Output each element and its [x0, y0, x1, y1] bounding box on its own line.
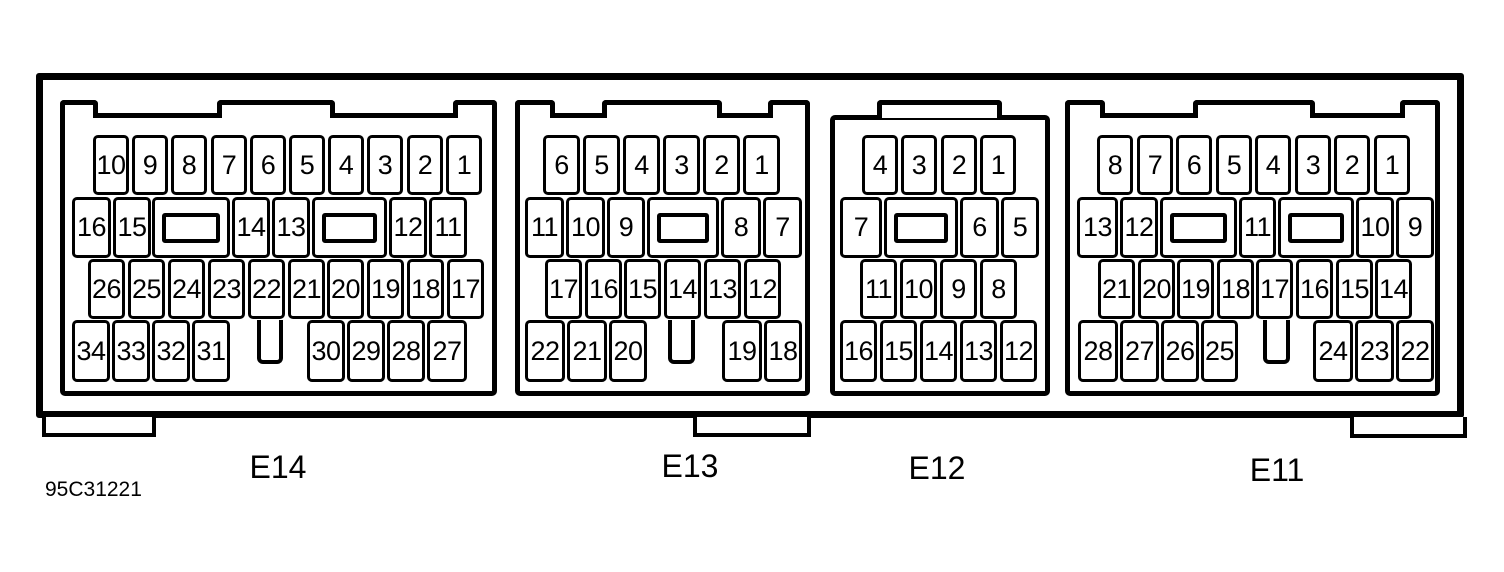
e14-pin: 12: [389, 197, 427, 258]
e13-pin: 18: [764, 320, 802, 382]
e13-pin: 10: [566, 197, 605, 258]
e14-pin: 26: [88, 259, 125, 319]
e12-pin: 1: [980, 135, 1016, 195]
e14-pin: 31: [192, 320, 230, 382]
e14-pin: 6: [250, 135, 286, 195]
e14-pin: 29: [347, 320, 385, 382]
e11-pin: 17: [1256, 259, 1293, 319]
e11-pin: 9: [1396, 197, 1434, 258]
e14-pin: 13: [272, 197, 310, 258]
e13-pin: 22: [525, 320, 565, 382]
mount-tab-right: [1350, 417, 1467, 438]
e13-pin: 8: [721, 197, 761, 258]
e11-blank-slot-plug: [1170, 213, 1227, 243]
e14-pin: 20: [327, 259, 364, 319]
e11-blank-slot: [1278, 197, 1354, 258]
e14-key-tab-0: [60, 100, 98, 118]
figure-reference-label: 95C31221: [45, 478, 142, 502]
e14-pin: 27: [427, 320, 467, 382]
e14-pin: 28: [387, 320, 425, 382]
e13-pin: 5: [583, 135, 620, 195]
e14-pin: 2: [407, 135, 443, 195]
e11-key-tab-1: [1193, 100, 1315, 118]
e11-pin: 2: [1334, 135, 1370, 195]
e11-pin: 10: [1356, 197, 1394, 258]
e11-pin: 8: [1097, 135, 1133, 195]
e11-pin: 11: [1239, 197, 1276, 258]
e14-pin: 7: [211, 135, 247, 195]
e12-pin: 16: [840, 320, 877, 382]
e14-blank-slot-plug: [322, 213, 377, 243]
e14-pin: 3: [367, 135, 403, 195]
e14-pin: 5: [289, 135, 325, 195]
e12-pin: 3: [901, 135, 937, 195]
connector-label-e14: E14: [250, 449, 307, 486]
e14-pin: 34: [72, 320, 110, 382]
e11-pin: 6: [1176, 135, 1212, 195]
mount-tab-middle: [693, 417, 811, 437]
e13-pin: 20: [609, 320, 647, 382]
e13-key-tab-0: [515, 100, 555, 118]
e11-pin: 1: [1374, 135, 1410, 195]
e13-blank-slot: [647, 197, 719, 258]
e13-pin: 12: [744, 259, 781, 319]
e14-blank-slot: [312, 197, 387, 258]
e14-pin: 18: [407, 259, 444, 319]
e13-pin: 1: [743, 135, 780, 195]
e14-pin: 25: [128, 259, 165, 319]
e11-pin: 16: [1296, 259, 1333, 319]
e11-pin: 27: [1120, 320, 1159, 382]
e14-pin: 32: [152, 320, 190, 382]
e11-pin: 19: [1177, 259, 1214, 319]
e13-pin: 16: [585, 259, 622, 319]
e14-pin: 30: [307, 320, 345, 382]
e13-key-tab-2: [768, 100, 810, 118]
e14-pin: 8: [171, 135, 207, 195]
e11-pin: 14: [1375, 259, 1412, 319]
e12-pin: 10: [900, 259, 937, 319]
e14-key-channel: [257, 320, 283, 364]
e11-pin: 26: [1161, 320, 1199, 382]
e14-pin: 17: [447, 259, 484, 319]
e14-pin: 9: [132, 135, 168, 195]
e13-blank-slot-plug: [657, 213, 709, 243]
e14-pin: 16: [72, 197, 111, 258]
connector-label-e11: E11: [1250, 452, 1305, 489]
e14-key-tab-1: [217, 100, 335, 118]
connector-label-e12: E12: [909, 450, 966, 487]
e11-pin: 28: [1078, 320, 1118, 382]
e11-key-tab-2: [1400, 100, 1440, 118]
e12-pin: 13: [960, 320, 997, 382]
e14-pin: 1: [446, 135, 482, 195]
e14-pin: 23: [208, 259, 245, 319]
e11-pin: 12: [1120, 197, 1158, 258]
e11-pin: 25: [1201, 320, 1238, 382]
e13-pin: 9: [607, 197, 645, 258]
e13-pin: 14: [664, 259, 701, 319]
e11-pin: 20: [1138, 259, 1175, 319]
e11-pin: 4: [1255, 135, 1291, 195]
e11-pin: 23: [1355, 320, 1394, 382]
e11-pin: 22: [1396, 320, 1434, 382]
e14-key-tab-2: [453, 100, 497, 118]
e13-pin: 19: [722, 320, 762, 382]
mount-tab-left: [42, 417, 156, 437]
e14-pin: 21: [288, 259, 325, 319]
e12-pin: 6: [960, 197, 999, 258]
e13-pin: 4: [623, 135, 660, 195]
e14-pin: 4: [328, 135, 364, 195]
e13-pin: 21: [567, 320, 607, 382]
e14-pin: 11: [429, 197, 467, 258]
e11-key-tab-0: [1065, 100, 1105, 118]
e14-blank-slot-plug: [162, 213, 220, 243]
e11-pin: 7: [1137, 135, 1173, 195]
e11-pin: 18: [1217, 259, 1254, 319]
e14-pin: 24: [168, 259, 205, 319]
e11-key-channel: [1263, 320, 1290, 364]
e12-pin: 7: [840, 197, 882, 258]
e12-pin: 4: [862, 135, 898, 195]
e12-blank-slot-plug: [894, 213, 948, 243]
e14-pin: 15: [113, 197, 151, 258]
e11-blank-slot: [1160, 197, 1237, 258]
connector-pinout-diagram: 1098765432116151413121126252423222120191…: [0, 0, 1504, 572]
e14-blank-slot: [152, 197, 230, 258]
e13-key-tab-1: [602, 100, 722, 118]
e12-pin: 9: [940, 259, 977, 319]
e13-pin: 17: [545, 259, 582, 319]
e14-pin: 14: [232, 197, 270, 258]
e13-pin: 11: [525, 197, 564, 258]
e12-pin: 5: [1001, 197, 1039, 258]
e12-pin: 11: [860, 259, 897, 319]
e12-pin: 12: [1000, 320, 1037, 382]
e13-pin: 2: [703, 135, 740, 195]
e13-pin: 15: [624, 259, 661, 319]
e11-pin: 21: [1098, 259, 1135, 319]
connector-label-e13: E13: [662, 448, 719, 485]
e12-pin: 8: [980, 259, 1017, 319]
e11-pin: 13: [1077, 197, 1118, 258]
e13-pin: 7: [763, 197, 802, 258]
e12-blank-slot: [884, 197, 958, 258]
e13-key-channel: [668, 320, 695, 364]
e11-pin: 5: [1216, 135, 1252, 195]
e11-pin: 3: [1295, 135, 1331, 195]
e13-pin: 6: [543, 135, 580, 195]
e12-pin: 2: [941, 135, 977, 195]
e14-pin: 10: [93, 135, 129, 195]
e13-pin: 13: [704, 259, 741, 319]
e14-pin: 22: [248, 259, 285, 319]
e11-pin: 15: [1336, 259, 1373, 319]
e11-blank-slot-plug: [1288, 213, 1344, 243]
e14-pin: 33: [112, 320, 150, 382]
e13-pin: 3: [663, 135, 700, 195]
e12-pin: 15: [880, 320, 917, 382]
e12-key-tab-0: [877, 100, 1002, 118]
e12-pin: 14: [920, 320, 957, 382]
e14-pin: 19: [367, 259, 404, 319]
e11-pin: 24: [1313, 320, 1353, 382]
